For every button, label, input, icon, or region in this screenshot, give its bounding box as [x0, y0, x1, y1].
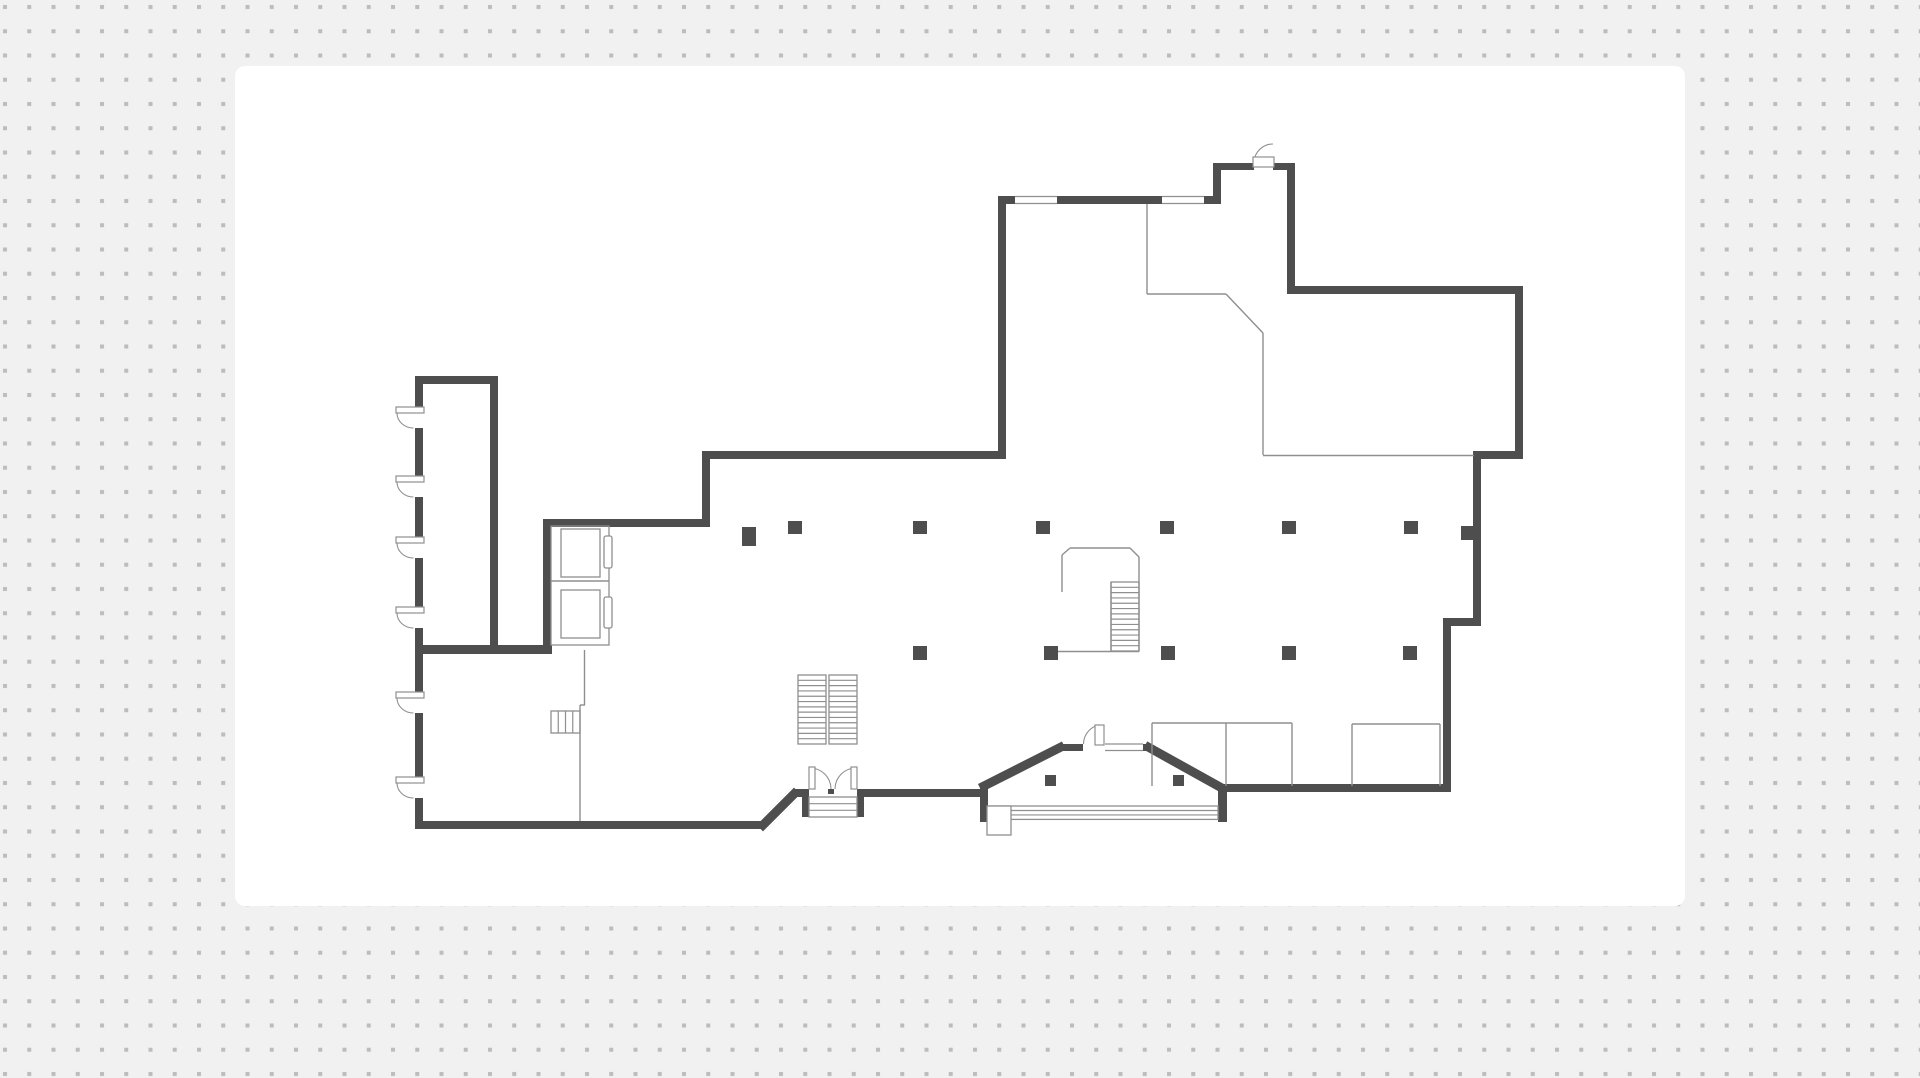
door-leaf: [851, 767, 857, 789]
column: [1036, 521, 1050, 534]
door-leaf: [1253, 157, 1274, 167]
door-leaf: [396, 476, 424, 482]
door-leaf: [396, 777, 424, 783]
column: [1282, 521, 1296, 534]
canvas-card[interactable]: [235, 66, 1685, 906]
wall-segment: [1443, 618, 1451, 792]
wall-segment: [490, 384, 498, 645]
door-leaf: [396, 607, 424, 613]
wall-segment: [415, 376, 498, 384]
wall-segment: [1227, 784, 1450, 792]
column: [1461, 526, 1473, 540]
column: [913, 521, 927, 534]
door-leaf: [396, 692, 424, 698]
elevator-door: [604, 597, 612, 628]
wall-segment: [1287, 163, 1295, 294]
wall-segment: [1287, 286, 1523, 294]
wall-segment: [702, 451, 1003, 459]
column: [1173, 775, 1184, 786]
wall-segment: [415, 821, 763, 829]
wall-segment: [543, 519, 551, 650]
wall-segment: [864, 789, 980, 797]
door-leaf: [809, 767, 815, 789]
elevator-door: [604, 536, 612, 568]
wall-segment: [1473, 451, 1481, 626]
column: [1161, 646, 1175, 660]
wall-segment: [828, 789, 834, 794]
wall-segment: [702, 452, 710, 527]
window: [1105, 744, 1143, 751]
column: [1045, 775, 1056, 786]
entrance-planter: [987, 806, 1011, 835]
design-canvas[interactable]: [0, 0, 1920, 1078]
column: [742, 527, 756, 546]
window: [1162, 197, 1204, 204]
column: [1403, 646, 1417, 660]
wall-segment: [1515, 286, 1523, 459]
wall-segment: [415, 376, 423, 829]
door-leaf: [396, 407, 424, 413]
wall-segment: [415, 645, 552, 654]
floorplan-svg[interactable]: [0, 0, 1920, 1078]
door-leaf: [1095, 725, 1104, 745]
door-leaf: [396, 537, 424, 543]
wall-segment: [802, 789, 809, 817]
column: [913, 646, 927, 660]
column: [1044, 646, 1058, 660]
column: [1282, 646, 1296, 660]
wall-segment: [998, 196, 1006, 459]
wall-segment: [857, 789, 864, 817]
window: [1015, 197, 1057, 204]
column: [1404, 521, 1418, 534]
column: [788, 521, 802, 534]
column: [1160, 521, 1174, 534]
